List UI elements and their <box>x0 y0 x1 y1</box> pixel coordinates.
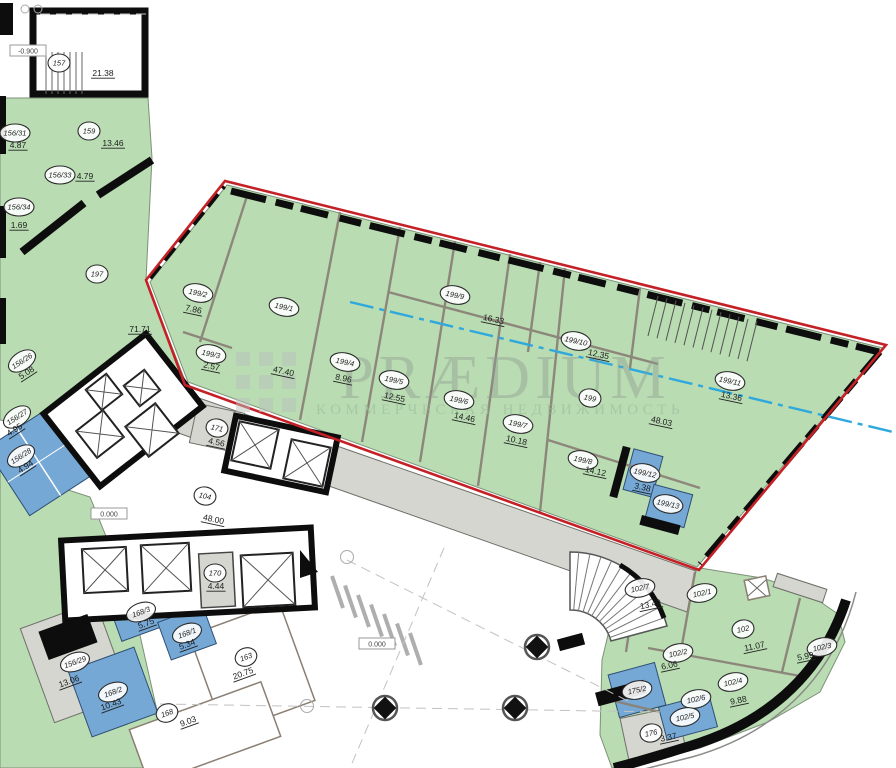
room-label-156-34: 156/34 <box>4 198 34 216</box>
svg-text:1.69: 1.69 <box>11 220 28 230</box>
axis-line <box>350 548 444 768</box>
svg-text:13.46: 13.46 <box>102 138 124 148</box>
room-label-170: 170 <box>204 564 226 582</box>
elevator-shaft <box>141 543 191 593</box>
svg-text:156/31: 156/31 <box>4 129 27 138</box>
svg-text:4.79: 4.79 <box>77 171 94 181</box>
lobby-hatch-bar <box>345 586 356 618</box>
lobby-hatch-bar <box>397 624 408 656</box>
svg-text:156/34: 156/34 <box>8 203 31 212</box>
floor-plan-canvas: PRÆDIUM КОММЕРЧЕСКАЯ НЕДВИЖИМОСТЬ 15721.… <box>0 0 896 768</box>
svg-text:4.87: 4.87 <box>10 140 27 150</box>
svg-text:0.000: 0.000 <box>100 512 118 519</box>
room-label-157: 157 <box>48 54 70 72</box>
level-mark-1: 0.000 <box>91 508 127 519</box>
room-label-159: 159 <box>78 122 100 140</box>
room-area-156-31: 4.87 <box>8 140 27 150</box>
room-area-159: 13.46 <box>101 138 125 148</box>
room-area-104: 48.00 <box>201 512 227 527</box>
watermark-logo-square <box>282 398 296 412</box>
watermark-logo-square <box>259 398 273 412</box>
room-area-157: 21.38 <box>91 68 115 78</box>
svg-text:-0.900: -0.900 <box>18 49 38 56</box>
elevator-shaft <box>82 547 128 593</box>
room-area-197: 71.71 <box>128 324 152 334</box>
floor-plan: PRÆDIUM КОММЕРЧЕСКАЯ НЕДВИЖИМОСТЬ 15721.… <box>0 0 896 768</box>
watermark-logo-square <box>259 352 273 366</box>
lobby-hatch-bar <box>332 576 343 608</box>
grid-bubble <box>21 5 29 13</box>
elevator-shaft <box>283 439 330 486</box>
level-mark-0: -0.900 <box>10 45 46 56</box>
watermark-logo-square <box>236 375 250 389</box>
elevator-shaft <box>231 421 278 468</box>
room-label-156-33: 156/33 <box>45 166 75 184</box>
watermark-logo-square <box>236 352 250 366</box>
svg-text:157: 157 <box>53 59 66 68</box>
elevator-shaft <box>241 553 296 608</box>
svg-text:159: 159 <box>83 127 96 136</box>
svg-text:0.000: 0.000 <box>368 642 386 649</box>
level-mark-2: 0.000 <box>359 638 395 649</box>
lobby-hatch-bar <box>410 633 421 665</box>
room-label-104: 104 <box>192 485 217 507</box>
watermark-logo-square <box>282 352 296 366</box>
room-label-197: 197 <box>86 265 108 283</box>
svg-text:156/33: 156/33 <box>49 171 73 180</box>
room-area-156-34: 1.69 <box>9 220 28 230</box>
grid-bubble <box>341 551 354 564</box>
svg-text:4.44: 4.44 <box>208 581 225 591</box>
lobby-hatch-bar <box>358 595 369 627</box>
svg-text:71.71: 71.71 <box>129 324 151 334</box>
svg-text:21.38: 21.38 <box>92 68 114 78</box>
lobby-hatch-bar <box>371 605 382 637</box>
room-area-170: 4.44 <box>206 581 225 591</box>
room-area-156-33: 4.79 <box>75 171 94 181</box>
watermark-logo <box>236 352 296 412</box>
svg-text:197: 197 <box>91 270 104 279</box>
watermark-tagline: КОММЕРЧЕСКАЯ НЕДВИЖИМОСТЬ <box>316 402 684 418</box>
watermark-logo-square <box>259 375 273 389</box>
svg-text:170: 170 <box>209 569 222 578</box>
watermark-logo-square <box>236 398 250 412</box>
